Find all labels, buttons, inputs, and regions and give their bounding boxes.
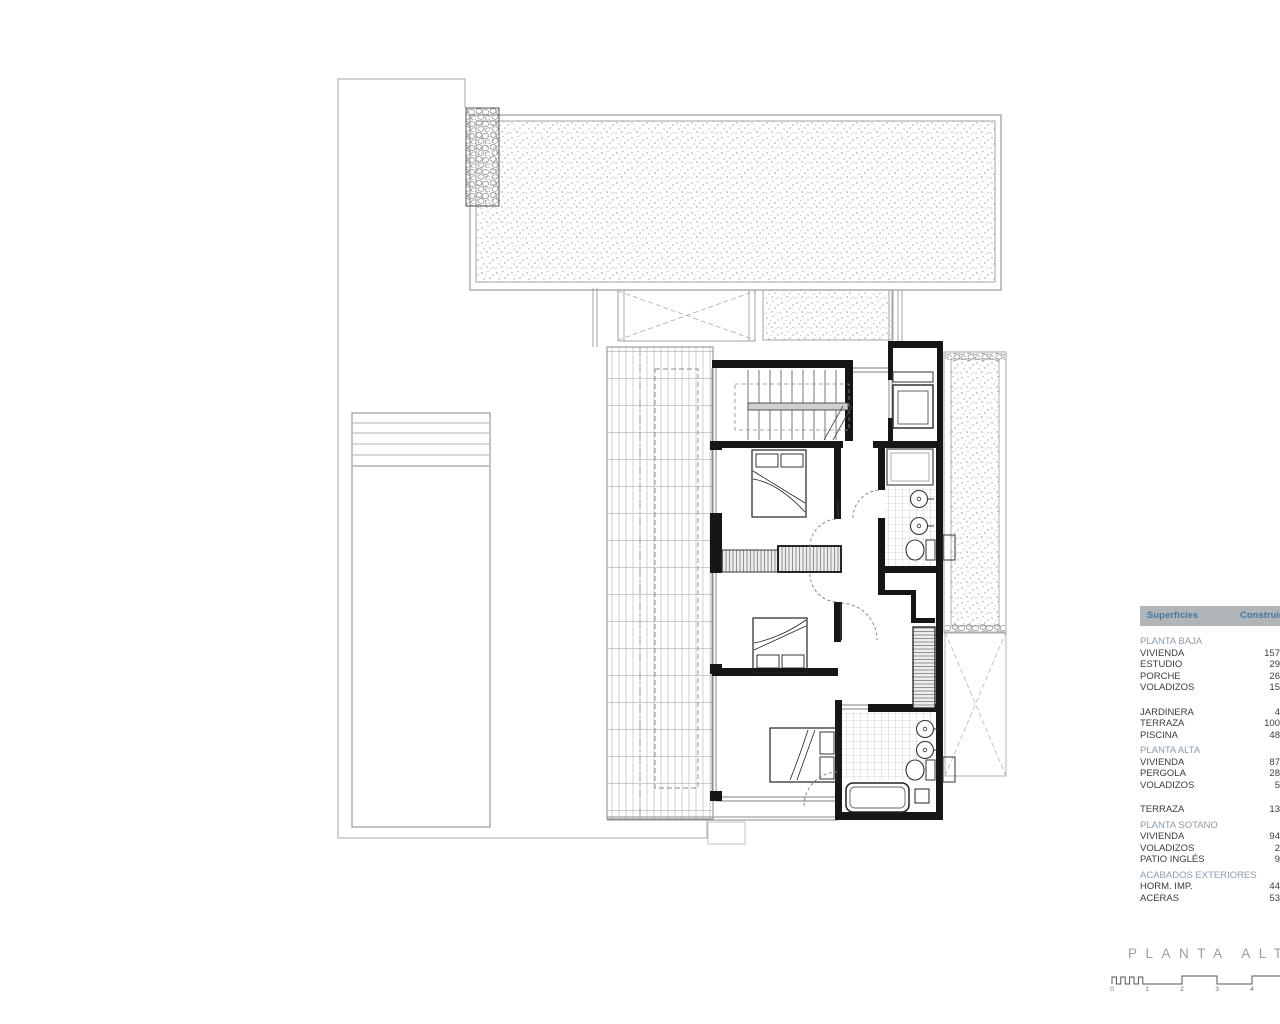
scale-tick-label: 4 (1250, 986, 1254, 993)
row-value: 44 (1269, 881, 1280, 892)
row-label: PERGOLA (1140, 768, 1186, 779)
row-label: ESTUDIO (1140, 659, 1182, 670)
table-row: ESTUDIO29 (1140, 659, 1280, 671)
table-row: VOLADIZOS5 (1140, 780, 1280, 792)
row-label: TERRAZA (1140, 804, 1184, 815)
row-value: 87 (1269, 757, 1280, 768)
surfaces-table-header: Superficies Construida (1140, 606, 1280, 626)
table-row: PERGOLA28 (1140, 768, 1280, 780)
table-row: VIVIENDA157 (1140, 648, 1280, 660)
bedroom-2-bed (753, 618, 807, 673)
row-label: PLANTA BAJA (1140, 636, 1202, 647)
plan-title: PLANTA ALTA (1128, 946, 1280, 961)
table-row: PORCHE26 (1140, 671, 1280, 683)
row-value: 29 (1269, 659, 1280, 670)
row-label: TERRAZA (1140, 718, 1184, 729)
header-col-construida: Construida (1240, 610, 1280, 621)
row-label: PATIO INGLÉS (1140, 854, 1205, 865)
row-label: VIVIENDA (1140, 831, 1184, 842)
roof-terrace (470, 115, 1001, 290)
bedroom-1-bed (752, 450, 806, 517)
bedroom-3-bed (770, 728, 837, 782)
row-value: 2 (1275, 843, 1280, 854)
wardrobe-2 (913, 627, 935, 708)
row-label: HORM. IMP. (1140, 881, 1193, 892)
row-label: PLANTA SOTANO (1140, 820, 1218, 831)
row-label: ACERAS (1140, 893, 1179, 904)
row-value: 15 (1269, 682, 1280, 693)
table-section-row: PLANTA BAJA (1140, 636, 1280, 648)
row-label: VIVIENDA (1140, 648, 1184, 659)
row-value: 13 (1269, 804, 1280, 815)
table-section-row: PLANTA SOTANO (1140, 820, 1280, 832)
swimming-pool (352, 413, 490, 827)
table-row: VOLADIZOS15 (1140, 682, 1280, 694)
table-row: HORM. IMP.44 (1140, 881, 1280, 893)
table-row: PISCINA48 (1140, 730, 1280, 742)
gravel-box (763, 290, 892, 340)
wardrobe-1 (722, 546, 841, 572)
table-spacer-row (1140, 694, 1280, 707)
table-row: ACERAS53 (1140, 893, 1280, 905)
skylight-crossbox (618, 290, 755, 341)
scale-tick-label: 3 (1215, 986, 1219, 993)
surfaces-table: Superficies Construida PLANTA BAJAVIVIEN… (1140, 606, 1280, 904)
row-label: PLANTA ALTA (1140, 745, 1200, 756)
row-label: VOLADIZOS (1140, 843, 1194, 854)
row-value: 9 (1275, 854, 1280, 865)
row-value: 48 (1269, 730, 1280, 741)
table-section-row: PLANTA ALTA (1140, 745, 1280, 757)
row-value: 100 (1264, 718, 1280, 729)
gabion-wall (466, 108, 499, 206)
table-row: PATIO INGLÉS9 (1140, 854, 1280, 866)
row-label: PISCINA (1140, 730, 1178, 741)
row-label: VOLADIZOS (1140, 780, 1194, 791)
table-row: VOLADIZOS2 (1140, 843, 1280, 855)
scale-tick-label: 0 (1110, 986, 1114, 993)
table-spacer-row (1140, 791, 1280, 804)
row-value: 5 (1275, 780, 1280, 791)
table-row: TERRAZA13 (1140, 804, 1280, 816)
staircase (735, 370, 852, 440)
floor-plan (0, 0, 1280, 1024)
row-value: 53 (1269, 893, 1280, 904)
row-label: VIVIENDA (1140, 757, 1184, 768)
row-label: PORCHE (1140, 671, 1181, 682)
row-value: 26 (1269, 671, 1280, 682)
row-label: ACABADOS EXTERIORES (1140, 870, 1257, 881)
row-value: 28 (1269, 768, 1280, 779)
row-value: 4 (1275, 707, 1280, 718)
table-section-row: ACABADOS EXTERIORES (1140, 870, 1280, 882)
table-row: JARDINERA4 (1140, 707, 1280, 719)
row-value: 94 (1269, 831, 1280, 842)
bathroom-1 (885, 449, 936, 566)
scale-bar-drawing (1108, 966, 1280, 986)
row-label: JARDINERA (1140, 707, 1194, 718)
row-label: VOLADIZOS (1140, 682, 1194, 693)
row-value: 157 (1264, 648, 1280, 659)
surfaces-rows: PLANTA BAJAVIVIENDA157ESTUDIO29PORCHE26V… (1140, 626, 1280, 904)
bathroom-2 (842, 712, 938, 812)
laundry-closet (893, 372, 933, 428)
planter-strip (944, 352, 1006, 633)
scale-tick-label: 1 (1145, 986, 1149, 993)
scale-tick-label: 2 (1180, 986, 1184, 993)
graphic-scale-bar: 01234 (1108, 966, 1280, 1000)
table-row: VIVIENDA94 (1140, 831, 1280, 843)
header-col-superficies: Superficies (1147, 610, 1198, 621)
table-row: TERRAZA100 (1140, 718, 1280, 730)
void-cross (945, 632, 1006, 776)
table-row: VIVIENDA87 (1140, 757, 1280, 769)
